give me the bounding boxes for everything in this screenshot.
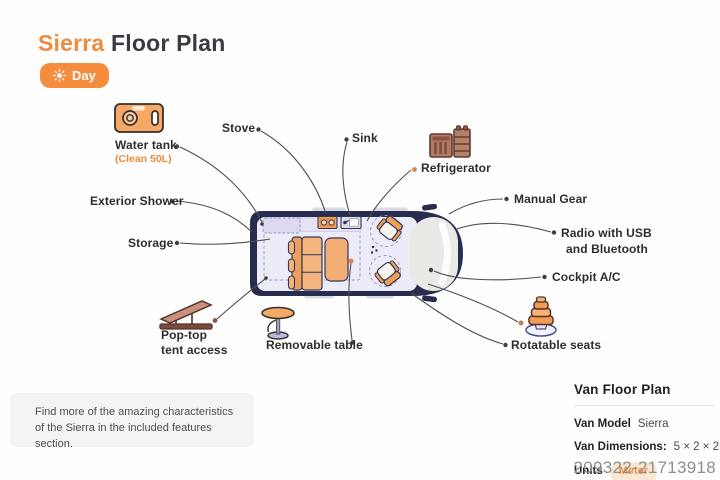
van-dimensions-value: 5 × 2 × 2m <box>674 441 720 453</box>
rotatable-seat-icon <box>524 296 558 338</box>
van-top-view-diagram <box>246 204 466 302</box>
label-water-tank-capacity: (Clean 50L) <box>115 153 172 165</box>
label-exterior-shower: Exterior Shower <box>90 194 184 208</box>
label-pop-top-line1: Pop-top <box>161 328 207 342</box>
water-tank-icon <box>112 98 166 136</box>
label-cockpit-ac: Cockpit A/C <box>552 270 621 284</box>
bench-armrest <box>289 241 295 254</box>
stove-shape <box>318 217 337 229</box>
refrigerator-icon <box>428 125 472 161</box>
side-mirror <box>422 295 438 302</box>
van-brand-name: Sierra <box>38 30 104 56</box>
storage-counter <box>263 218 300 233</box>
info-row-van-model: Van ModelSierra <box>574 416 715 433</box>
label-pop-top-line2: tent access <box>161 343 227 357</box>
label-manual-gear: Manual Gear <box>514 192 587 206</box>
features-note: Find more of the amazing characteristics… <box>10 393 254 447</box>
sun-icon <box>53 69 66 82</box>
van-model-value: Sierra <box>638 418 669 430</box>
label-sink: Sink <box>352 131 378 145</box>
label-rotatable-seats: Rotatable seats <box>511 338 601 352</box>
label-stove: Stove <box>222 121 255 135</box>
label-radio-line2: and Bluetooth <box>566 242 648 256</box>
page-title-rest: Floor Plan <box>104 30 225 56</box>
label-water-tank: Water tank <box>115 138 177 152</box>
features-note-line2: of the Sierra in the included features s… <box>35 420 244 452</box>
bench-armrest <box>289 276 295 289</box>
info-panel-divider <box>574 405 715 406</box>
label-refrigerator: Refrigerator <box>421 161 491 175</box>
info-row-van-dimensions: Van Dimensions:5 × 2 × 2m <box>574 439 715 456</box>
van-model-label: Van Model <box>574 418 631 430</box>
day-mode-toggle[interactable]: Day <box>40 63 109 88</box>
day-mode-label: Day <box>72 68 96 83</box>
removable-table-shape <box>325 238 348 281</box>
floor-plan-page: Sierra Floor Plan Day <box>0 0 720 480</box>
bench-seat <box>302 237 322 290</box>
label-storage: Storage <box>128 236 173 250</box>
label-removable-table: Removable table <box>266 338 363 352</box>
side-mirror <box>422 204 438 211</box>
features-note-line1: Find more of the amazing characteristics <box>35 404 244 420</box>
page-title: Sierra Floor Plan <box>38 30 225 57</box>
sink-shape <box>341 217 361 229</box>
watermark-id: 209322-21713918 <box>573 458 716 478</box>
pop-top-tent-icon <box>156 296 216 332</box>
info-panel-heading: Van Floor Plan <box>574 382 715 397</box>
van-dimensions-label: Van Dimensions: <box>574 441 667 453</box>
bench-armrest <box>289 259 295 272</box>
removable-table-icon <box>260 306 296 342</box>
label-radio-line1: Radio with USB <box>561 226 652 240</box>
